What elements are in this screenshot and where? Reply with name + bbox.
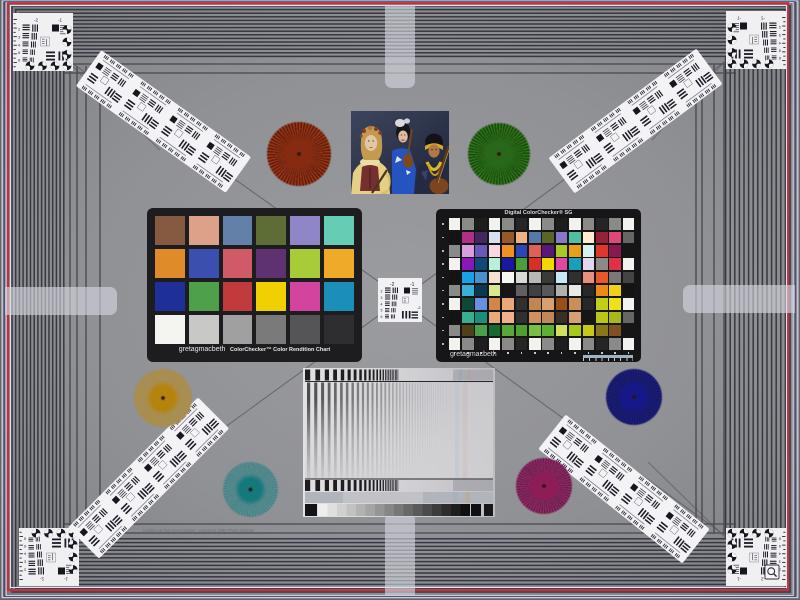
svg-text:6: 6 — [381, 315, 383, 319]
svg-text:-1: -1 — [410, 282, 415, 288]
svg-text:4: 4 — [381, 303, 383, 307]
svg-text:5: 5 — [381, 309, 383, 313]
svg-text:Lighting at this target settin: Lighting at this target setting - copyri… — [143, 528, 255, 533]
svg-text:-2: -2 — [390, 282, 395, 288]
svg-text:2: 2 — [381, 289, 383, 293]
svg-text:3: 3 — [381, 296, 383, 300]
